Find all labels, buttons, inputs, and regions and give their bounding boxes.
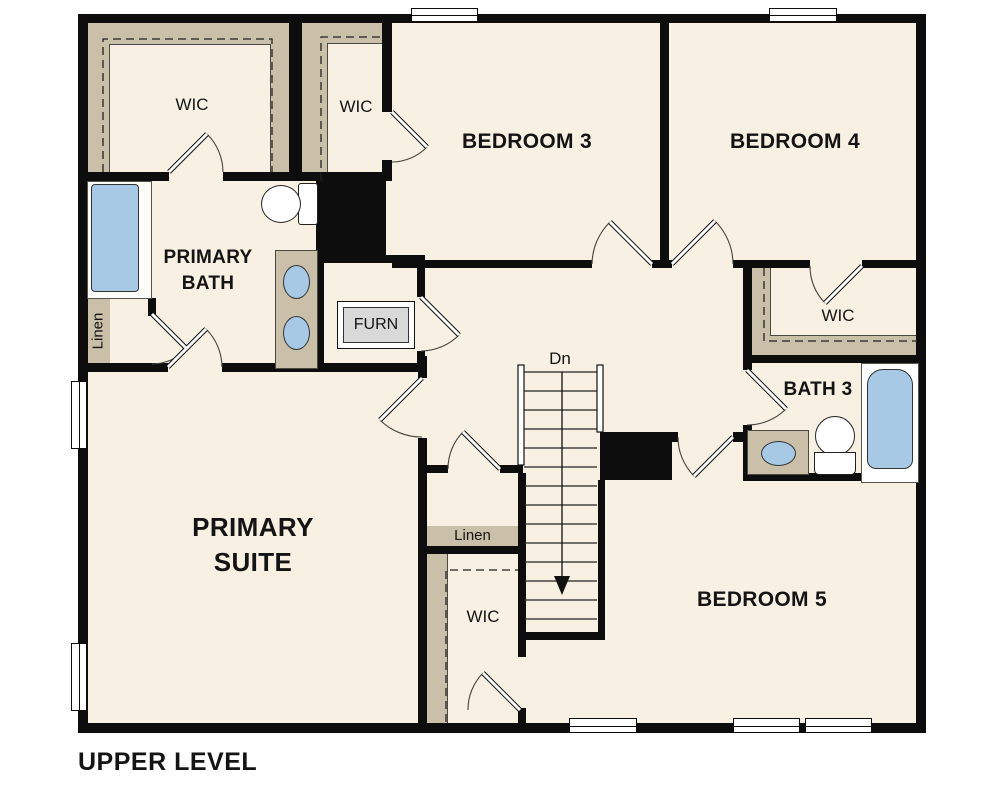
wall-wic1-right xyxy=(289,14,302,181)
wall-bedroom3-4-divider xyxy=(660,22,669,268)
furnace-label: FURN xyxy=(354,316,398,334)
toilet-tank-primary xyxy=(298,183,318,225)
wall-wic4-bottom xyxy=(743,355,917,363)
sink-bath3 xyxy=(761,441,796,466)
room-label-wic-bedroom4: WIC xyxy=(788,305,888,327)
room-label-bedroom3: BEDROOM 3 xyxy=(402,128,652,156)
sink-primary-2 xyxy=(283,316,310,350)
room-label-primary-bath: PRIMARY BATH xyxy=(128,244,288,298)
room-label-linen-bath: Linen xyxy=(86,300,112,363)
wall-linen-hall-top-a xyxy=(427,465,448,473)
room-label-wic-bedroom3: WIC xyxy=(306,96,406,118)
wall-hall-top-b xyxy=(733,260,810,268)
wall-linen-bath-stub xyxy=(148,298,156,316)
chase-black-b xyxy=(600,432,672,480)
window-bedroom5-3 xyxy=(805,718,872,733)
room-label-primary-suite: PRIMARY SUITE xyxy=(128,508,378,582)
window-bedroom5-2 xyxy=(733,718,800,733)
room-label-linen-hall: Linen xyxy=(427,527,518,546)
wall-furn-right-a xyxy=(417,263,425,297)
stairs-dn-label: Dn xyxy=(534,349,586,369)
room-label-wic-top-left: WIC xyxy=(142,94,242,116)
wall-hall-closet-left xyxy=(418,438,427,723)
jamb-bedroom5-door xyxy=(733,432,743,442)
window-bedroom5-1 xyxy=(569,718,637,733)
wic3-shelving xyxy=(427,554,447,723)
toilet-bowl-primary xyxy=(261,185,301,223)
wall-bath3-left-a xyxy=(743,363,752,370)
wall-stair-right-low xyxy=(598,480,605,632)
floor-plan-upper-level: FURN xyxy=(0,0,1000,800)
wall-wic3-right-stub xyxy=(518,708,526,723)
wall-bedroom5-door-a xyxy=(672,432,678,442)
room-label-wic-hall: WIC xyxy=(440,606,526,628)
window-primary-suite-2 xyxy=(71,643,87,711)
toilet-bowl-bath3 xyxy=(815,416,855,456)
chase-black-a xyxy=(316,178,386,255)
furnace-unit: FURN xyxy=(343,307,409,343)
window-bedroom3-top xyxy=(411,8,478,22)
window-bedroom4-top xyxy=(769,8,837,22)
room-label-bath3: BATH 3 xyxy=(743,377,893,403)
wall-hall-top-c xyxy=(862,260,917,268)
wall-bath-bottom-a xyxy=(78,363,168,372)
wall-linen-hall-right xyxy=(518,473,526,657)
room-label-bedroom5: BEDROOM 5 xyxy=(637,586,887,614)
wall-wic4-left xyxy=(743,268,752,363)
plan-title: UPPER LEVEL xyxy=(78,747,338,779)
wic3-interior xyxy=(447,554,519,723)
wall-hall-top-jamb xyxy=(652,260,672,268)
wall-linen-hall-bottom xyxy=(427,546,518,554)
wall-exterior-left xyxy=(78,14,88,733)
wall-bath-bottom-b xyxy=(222,363,418,372)
wall-linen-hall-top-b xyxy=(500,465,523,473)
room-label-bedroom4: BEDROOM 4 xyxy=(670,128,920,156)
window-primary-suite-1 xyxy=(71,381,87,449)
wall-furn-top xyxy=(316,255,425,263)
wall-stair-bottom xyxy=(518,632,605,640)
jamb-suite-door xyxy=(418,356,427,378)
toilet-tank-bath3 xyxy=(814,452,856,475)
wall-wic1-bottom-a xyxy=(78,172,169,181)
